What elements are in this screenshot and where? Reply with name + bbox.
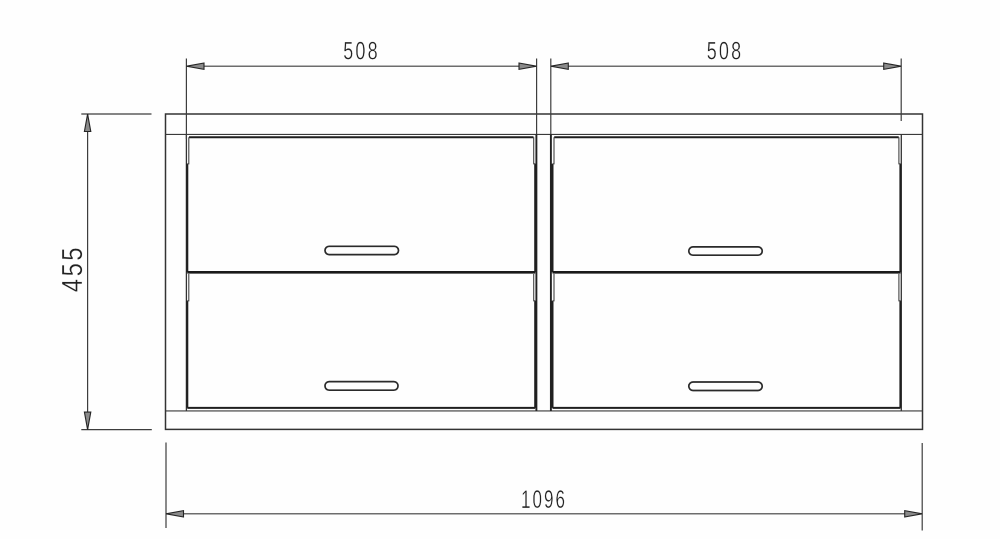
svg-text:508: 508 <box>343 37 380 66</box>
svg-text:508: 508 <box>707 37 744 66</box>
svg-text:455: 455 <box>56 245 89 292</box>
svg-text:1096: 1096 <box>521 486 567 514</box>
